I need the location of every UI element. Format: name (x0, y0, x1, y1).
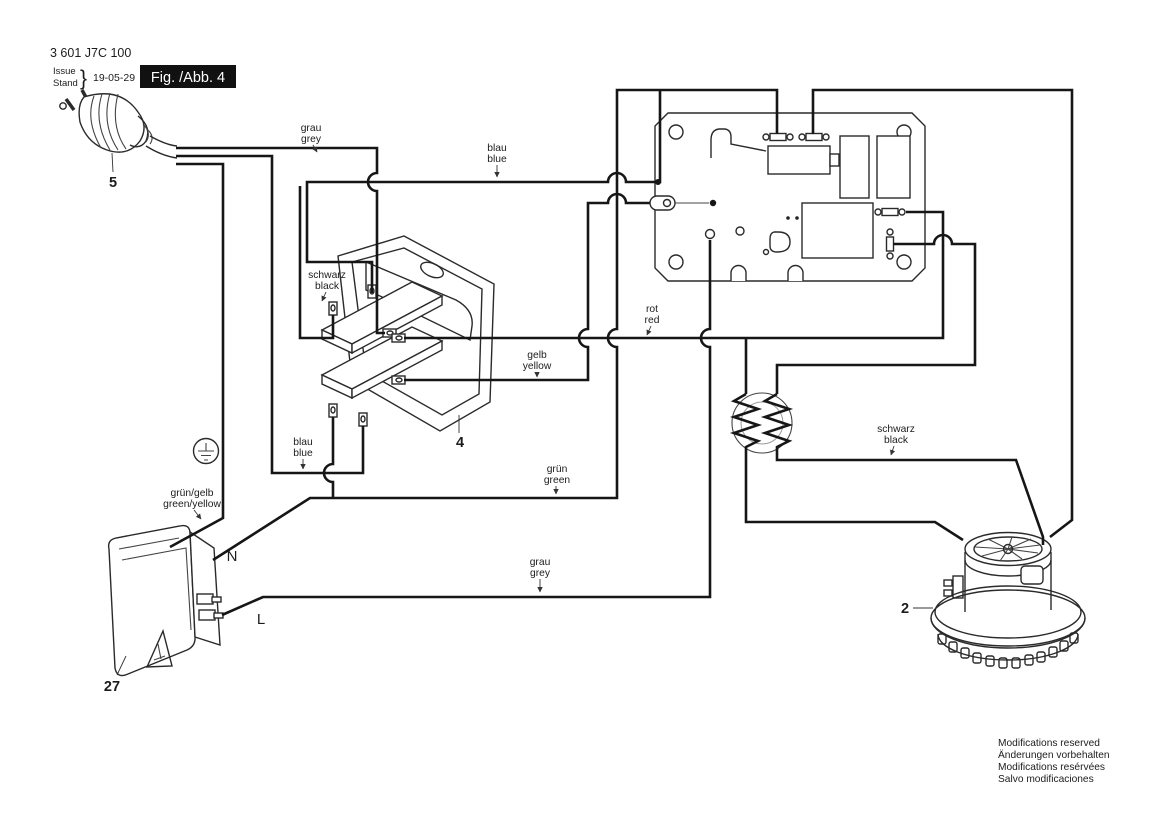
svg-text:grün: grün (547, 464, 568, 475)
plug-leader (112, 153, 113, 172)
plug-pin-ring (60, 103, 66, 109)
pcb-edge-pad (650, 196, 675, 210)
label-blau-mid: blau blue (293, 437, 313, 469)
pcb-relay (802, 203, 873, 258)
plug-cable-bottom (146, 146, 177, 158)
wire-blau-switch-pcb (307, 90, 660, 293)
wire-choke-left-motor (746, 452, 963, 540)
motor-base-rim (935, 586, 1081, 638)
issue-label: Issue (53, 66, 76, 77)
stand-label: Stand (53, 78, 78, 89)
plug-body (79, 94, 144, 152)
issue-date: 19-05-29 (93, 72, 135, 84)
svg-text:grey: grey (301, 134, 322, 145)
figure-label: Fig. /Abb. 4 (151, 70, 225, 86)
label-schwarz-switch: schwarz black (308, 270, 346, 301)
svg-text:schwarz: schwarz (877, 424, 915, 435)
rocker-switch: 4 (322, 236, 494, 451)
svg-text:grau: grau (301, 123, 322, 134)
mains-plug: 5 (60, 90, 177, 191)
pcb-notch (731, 266, 746, 282)
motor-terminal-tab (944, 580, 952, 586)
svg-text:schwarz: schwarz (308, 270, 346, 281)
pcb-component (840, 136, 869, 198)
control-pcb (655, 113, 925, 281)
switch-ref-label: 4 (456, 435, 464, 451)
svg-text:blue: blue (293, 448, 313, 459)
label-gelb: gelb yellow (523, 350, 552, 377)
svg-text:gelb: gelb (527, 350, 547, 361)
wire-gruen-switch-branch (324, 417, 333, 498)
pcb-capacitor-nub (830, 154, 839, 166)
note-de: Änderungen vorbehalten (998, 749, 1110, 761)
note-es: Salvo modificaciones (998, 774, 1094, 785)
socket-ref-label: 27 (104, 679, 120, 695)
ground-symbol-icon (194, 439, 219, 464)
choke-zigzag-left (734, 394, 758, 452)
svg-text:yellow: yellow (523, 361, 552, 372)
label-gruen-gelb: grün/gelb green/yellow (163, 488, 221, 519)
svg-text:blau: blau (487, 143, 507, 154)
svg-text:red: red (645, 315, 660, 326)
note-fr: Modifications resérvées (998, 762, 1105, 773)
wiring (170, 90, 1072, 615)
label-rot: rot red (645, 304, 660, 335)
label-schwarz-right: schwarz black (877, 424, 915, 455)
brace-glyph: } (80, 67, 87, 90)
power-socket: 27 (104, 526, 223, 695)
motor-ref-label: 2 (901, 601, 909, 617)
socket-terminal (197, 594, 213, 604)
plug-pin (66, 99, 74, 110)
socket-terminal (199, 610, 215, 620)
schematic-canvas: 3 601 J7C 100 Issue Stand } 19-05-29 Fig… (0, 0, 1169, 826)
part-number: 3 601 J7C 100 (50, 46, 131, 60)
label-blau-top: blau blue (487, 143, 507, 177)
socket-side (190, 532, 220, 645)
label-gruen: grün green (544, 464, 571, 494)
title-block: 3 601 J7C 100 Issue Stand } 19-05-29 Fig… (50, 46, 236, 90)
pcb-edge-dot (655, 179, 661, 185)
motor-base-skirt (931, 618, 1085, 648)
note-en: Modifications reserved (998, 738, 1100, 749)
pcb-notch (788, 266, 803, 282)
modification-notes: Modifications reserved Änderungen vorbeh… (998, 738, 1110, 785)
pcb-capacitor (768, 146, 830, 174)
svg-text:rot: rot (646, 304, 658, 315)
line-terminal-label: L (257, 611, 265, 628)
svg-text:grau: grau (530, 557, 551, 568)
pcb-component (877, 136, 910, 198)
plug-ref-label: 5 (109, 175, 117, 191)
neutral-terminal-label: N (227, 548, 238, 565)
svg-text:black: black (315, 281, 340, 292)
wire-schwarz-choke-motor (777, 452, 1043, 545)
pcb-solder-dot (710, 200, 716, 206)
pcb-dot (795, 216, 799, 220)
svg-text:green: green (544, 475, 571, 486)
svg-text:green/yellow: green/yellow (163, 499, 221, 510)
motor-body-detail (1021, 566, 1043, 584)
svg-text:grün/gelb: grün/gelb (171, 488, 214, 499)
svg-text:blue: blue (487, 154, 507, 165)
suction-motor: 2 (901, 533, 1085, 669)
plug-cable-top (150, 136, 177, 146)
wiring-diagram-page: 3 601 J7C 100 Issue Stand } 19-05-29 Fig… (0, 0, 1169, 826)
svg-text:grey: grey (530, 568, 551, 579)
svg-text:blau: blau (293, 437, 313, 448)
socket-terminal-tab (212, 597, 221, 602)
pcb-dot (786, 216, 790, 220)
label-grau-bottom: grau grey (530, 557, 551, 592)
svg-text:black: black (884, 435, 909, 446)
